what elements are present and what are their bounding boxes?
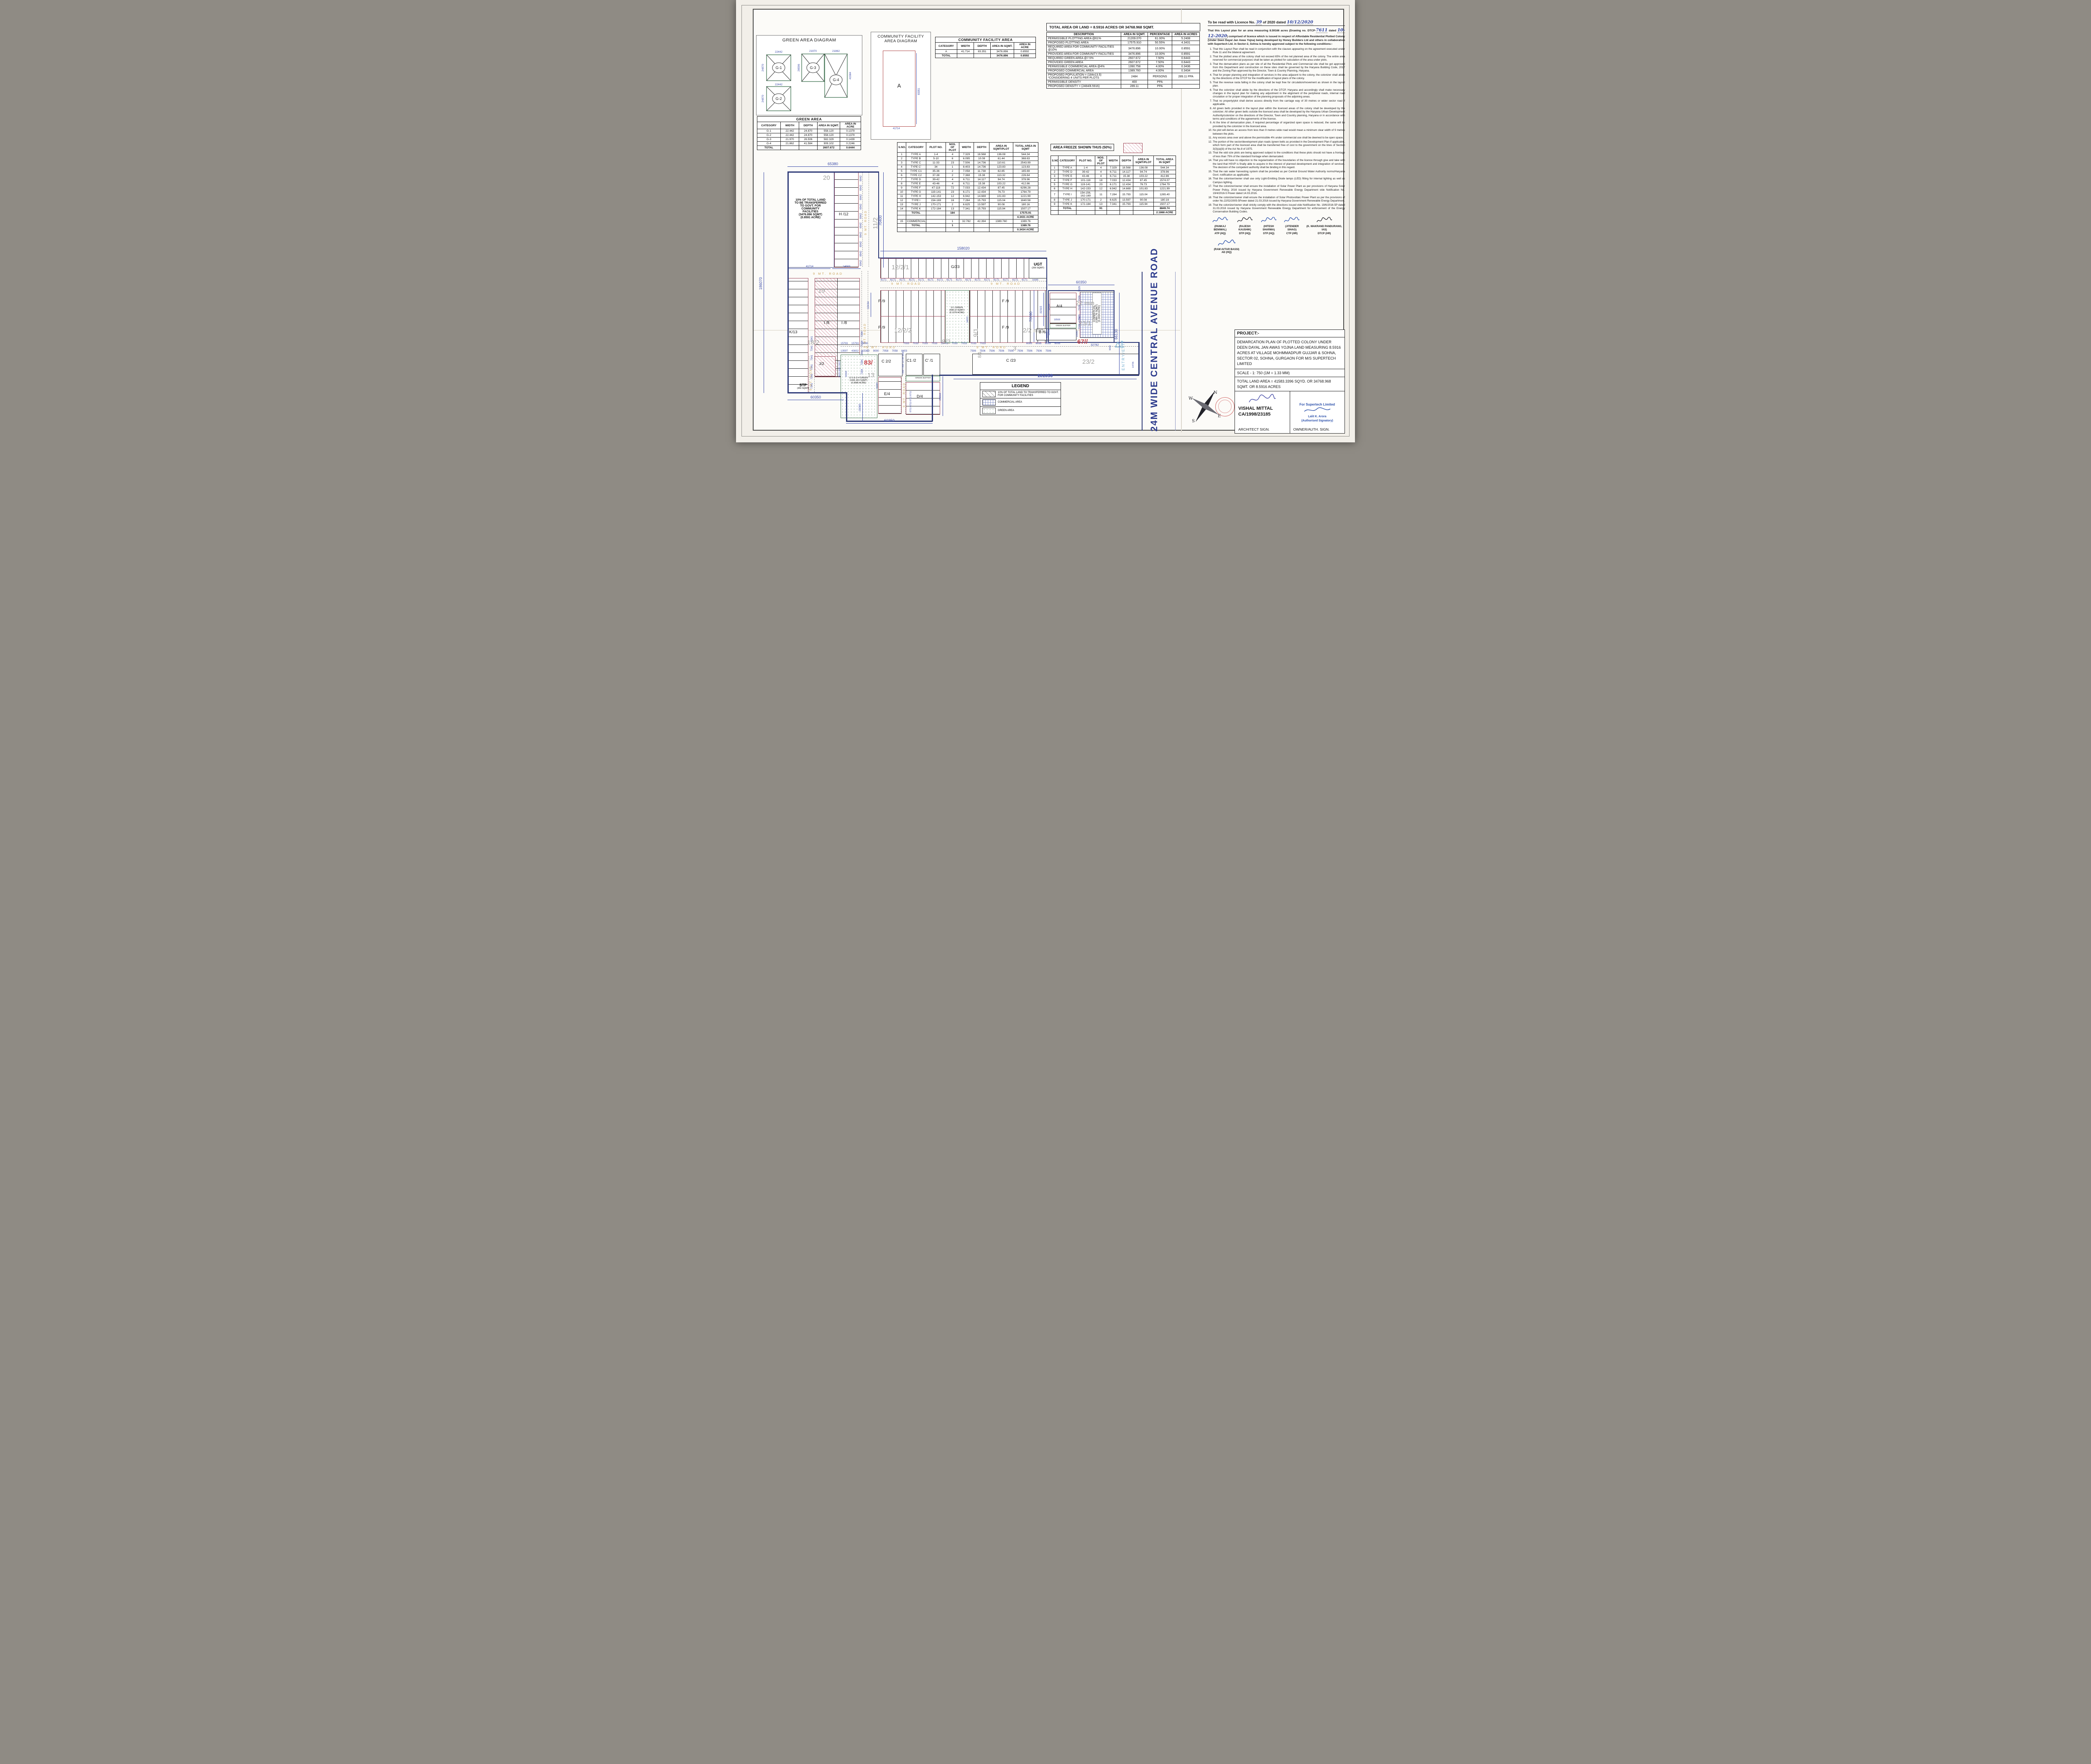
table-cell: TYPE D — [1058, 170, 1076, 174]
khasra-number: 3 — [1013, 345, 1016, 352]
khasra-number: 13 — [867, 372, 874, 379]
table-cell: 9 — [897, 186, 906, 190]
table-cell: 4 — [1095, 166, 1107, 170]
plot-label: C /23 — [1006, 359, 1016, 363]
green-table-title: GREEN AREA — [757, 117, 861, 122]
licence-condition: That this Layout Plan shall be read in c… — [1213, 48, 1345, 54]
table-cell — [974, 211, 989, 215]
table-cell: 142-153 — [926, 194, 946, 199]
table-cell: 170-171 — [1076, 198, 1095, 202]
legend-item-green: GREEN AREA — [980, 407, 1061, 415]
table-row: 2TYPE D39-4246.71114.11794.74378.96 — [1051, 170, 1176, 174]
col-width: WIDTH — [1107, 156, 1120, 166]
table-cell: TOTAL — [757, 146, 781, 150]
cf-table-title: COMMUNITY FACILITY AREA — [936, 37, 1036, 43]
table-cell: 9 — [1051, 202, 1058, 207]
table-cell: 12.434 — [974, 186, 989, 190]
area-freeze-note: AREA FREEZE SHOWN THUS (50%) — [1051, 144, 1114, 151]
col-category: CATEGORY — [1058, 156, 1076, 166]
table-row: G-321.97026.506582.3290.1439 — [757, 138, 861, 142]
plot-block-C12 — [906, 354, 923, 375]
table-row: PROPOSED POPULATION = (184x13.5) *CONSID… — [1047, 73, 1200, 80]
table-cell — [1172, 84, 1200, 89]
table-cell: TYPE K — [1058, 202, 1076, 207]
table-row: PERMISSIBLE DENSITY400PPA — [1047, 80, 1200, 84]
table-cell: 1507.17 — [1013, 207, 1038, 211]
road-label: 9 MT. ROAD — [864, 210, 867, 235]
table-cell: TYPE J — [1058, 198, 1076, 202]
table-cell — [897, 215, 906, 220]
road-label: 9 MT. ROAD — [903, 383, 906, 407]
architect-sign-cell: VISHAL MITTAL CA/1998/23185 ARCHITECT SI… — [1235, 391, 1290, 433]
col-area-per-plot: AREA IN SQMT/PLOT — [1133, 156, 1154, 166]
table-cell: 154-169 — [926, 199, 946, 203]
table-cell: 10.00% — [1148, 45, 1172, 52]
legend-item-commercial: COMMERCIAL AREA — [980, 398, 1061, 407]
licence-notes: To be read with Licence No. 39 of 2020 d… — [1208, 20, 1345, 254]
cf-diagram-title: COMMUNITY FACILITY AREA DIAGRAM — [871, 34, 930, 43]
table-cell: 61.44 — [989, 157, 1013, 161]
project-title-block: PROJECT:- DEMARCATION PLAN OF PLOTTED CO… — [1235, 329, 1345, 434]
dimension-label: 7284 7284 7284 7284 7284 — [861, 280, 864, 375]
dimension-label: 6942 6942 6942 6942 6942 6942 6942 6942 … — [860, 174, 863, 266]
table-row: G-421.86241.584909.1020.2246 — [757, 142, 861, 146]
dimension-label: 41584 — [877, 383, 879, 389]
drawing-sheet: GREEN AREA DIAGRAM G-1 G-3 G-4 G-2 — [736, 0, 1355, 442]
table-cell: 43-46 — [926, 182, 946, 186]
table-cell: 4 — [1095, 170, 1107, 174]
table-cell: 12.434 — [974, 190, 989, 194]
table-cell: 4.00% — [1148, 69, 1172, 73]
licence-condition: That you will have no objection to the r… — [1213, 159, 1345, 169]
plot-row-C23 — [972, 354, 1139, 375]
table-row: TOTAL3476.8960.8592 — [936, 54, 1036, 58]
table-cell: 7.033 — [1107, 179, 1120, 183]
table-cell: 37-38 — [926, 174, 946, 178]
table-cell: 8 — [897, 182, 906, 186]
table-cell: 2 — [946, 174, 959, 178]
table-cell: 6.711 — [959, 178, 974, 182]
licence-condition: That the colonizer/owner shall strictly … — [1213, 204, 1345, 214]
table-row: 5TYPE G119-141236.17112.43476.731764.79 — [1051, 183, 1176, 187]
table-cell: 5.2408 — [1172, 37, 1200, 41]
road-label: 9 MT. ROAD — [795, 272, 861, 276]
table-cell — [1107, 211, 1120, 215]
table-cell: TYPE E — [1058, 174, 1076, 179]
g2-depth-dim: 24870 — [762, 95, 764, 102]
table-cell: TYPE A — [1058, 166, 1076, 170]
licence-condition: That the revenue rasta falling in the co… — [1213, 81, 1345, 88]
table-cell: 1764.79 — [1013, 190, 1038, 194]
table-cell — [897, 228, 906, 232]
licence-condition: That the odd size plots are being approv… — [1213, 151, 1345, 158]
table-cell: 2 — [946, 169, 959, 174]
table-cell: 15.793 — [1120, 191, 1133, 198]
table-cell: 7.058 — [959, 169, 974, 174]
table-cell — [926, 228, 946, 232]
table-cell — [1051, 211, 1058, 215]
table-cell: 3 — [1051, 174, 1058, 179]
table-cell — [989, 215, 1013, 220]
table-cell: 15.38 — [974, 174, 989, 178]
dimension-label: 7341 7341 7341 7341 7341 7341 — [811, 280, 814, 389]
cf-plot-A: A — [883, 51, 915, 127]
area-summary-table: DESCRIPTION AREA IN SQMT. PERCENTAGE ARE… — [1046, 32, 1200, 89]
licence-condition: That the colonizer shall abide by the di… — [1213, 89, 1345, 99]
table-cell: 24.870 — [799, 129, 818, 133]
table-cell: 101.83 — [1133, 187, 1154, 191]
dimension-label: 7368 7368 11738 3000 — [902, 355, 905, 375]
signatory-role: CTP (HR) — [1280, 232, 1304, 235]
plot-row-F9 — [880, 316, 945, 343]
table-cell: 115.04 — [989, 199, 1013, 203]
dimension-label: 6625 6625 5917 — [839, 358, 841, 377]
table-cell: 22.442 — [781, 129, 799, 133]
table-cell: 119-141 — [926, 190, 946, 194]
ugt-area: (200 SQMT) — [1029, 267, 1047, 269]
table-row: 4TYPE F101-118187.03312.43487.451574.07 — [1051, 179, 1176, 183]
table-cell: 16 — [946, 199, 959, 203]
table-cell: 13.597 — [1120, 198, 1133, 202]
table-cell: 136.08 — [989, 153, 1013, 157]
table-cell: 1 — [946, 224, 959, 228]
table-cell: 103.22 — [989, 182, 1013, 186]
plot-label: E/4 — [884, 392, 890, 396]
cf-depth-dim: 83351 — [918, 88, 920, 95]
table-cell: TOTAL — [936, 54, 957, 58]
plot-row-F9-freeze — [969, 290, 1047, 317]
table-cell: TYPE C — [906, 161, 926, 165]
table-cell: TYPE F — [906, 186, 926, 190]
table-cell: 1-4 — [1076, 166, 1095, 170]
table-cell: 113.32 — [989, 174, 1013, 178]
table-row: A41.71483.3513476.8960.8592 — [936, 50, 1036, 54]
table-cell: 172-184 — [926, 207, 946, 211]
khasra-number: 12/2/2 — [894, 327, 912, 334]
table-cell: 6.711 — [1107, 170, 1120, 174]
table-cell: 136.08 — [1133, 166, 1154, 170]
table-cell — [1095, 211, 1107, 215]
table-cell: 0.8591 — [1172, 45, 1200, 52]
table-cell: 1389.760 — [989, 220, 1013, 224]
table-cell: 14.669 — [974, 194, 989, 199]
table-cell: 14.117 — [1120, 170, 1133, 174]
table-cell: 2 — [1095, 198, 1107, 202]
table-cell: 2543.99 — [1013, 161, 1038, 165]
table-cell: 11.738 — [974, 169, 989, 174]
col-total-area: TOTAL AREA IN SQMT — [1154, 156, 1176, 166]
table-cell: 170-171 — [926, 203, 946, 207]
table-row: 1TYPE A1-447.32918.568136.08544.34 — [1051, 166, 1176, 170]
table-cell — [974, 224, 989, 228]
table-cell: 13 — [897, 203, 906, 207]
green-area-G1-block: G-1 GREEN (558.12 SQMT) (0.1379 ACRE) — [945, 290, 969, 343]
table-cell: 6.171 — [1107, 183, 1120, 187]
legend-title: LEGEND — [980, 383, 1061, 390]
table-cell: TYPE G — [1058, 183, 1076, 187]
table-cell — [959, 211, 974, 215]
table-cell — [974, 228, 989, 232]
table-cell: 23 — [946, 190, 959, 194]
signatory-role: DTCP (HR) — [1304, 232, 1345, 235]
signatory-name: (JITENDER SIHAG) — [1280, 225, 1304, 232]
table-cell: 1 — [946, 220, 959, 224]
plot-strip-H12 — [834, 172, 859, 268]
table-cell — [946, 215, 959, 220]
table-cell: PROPOSED COMMERCIAL AREA — [1047, 69, 1121, 73]
table-cell — [926, 211, 946, 215]
table-cell: 0.2246 — [840, 142, 861, 146]
table-cell: REQUIRED AREA FOR COMMUNITY FACILITIES @… — [1047, 45, 1121, 52]
table-cell — [1120, 211, 1133, 215]
table-cell: 91 — [1095, 207, 1107, 211]
project-heading: PROJECT:- — [1235, 330, 1345, 337]
entry-exit-arrow — [1114, 340, 1123, 350]
table-cell: 1840.58 — [1013, 199, 1038, 203]
table-cell: 0.6443 — [1172, 56, 1200, 61]
col-nos: NOS. OF PLOT — [946, 143, 959, 153]
table-cell — [926, 224, 946, 228]
owner-signature — [1303, 407, 1332, 413]
khasra-number: 23/2 — [1082, 359, 1094, 365]
col-area-acre: AREA IN ACRE — [840, 122, 861, 129]
table-cell: 1390.758 — [1121, 65, 1148, 69]
table-cell: 0.1379 — [840, 129, 861, 133]
plot-divider — [837, 278, 838, 377]
table-cell: 1389.760 — [1121, 69, 1148, 73]
licence-condition: That the plotted area of the colony shal… — [1213, 55, 1345, 62]
table-cell: 115.04 — [1133, 191, 1154, 198]
licence-date-handwritten: 10/12/2020 — [1287, 20, 1313, 25]
table-row: 3TYPE E43-4646.71115.38103.22412.86 — [1051, 174, 1176, 179]
project-land-area: TOTAL LAND AREA = 41583.3396 SQYD. OR 34… — [1235, 377, 1345, 391]
table-cell: 13 — [946, 207, 959, 211]
green-area-diagram-panel: GREEN AREA DIAGRAM G-1 G-3 G-4 G-2 — [756, 35, 862, 115]
plot-label: C' /1 — [925, 359, 933, 363]
approval-stamp — [1215, 397, 1235, 416]
table-cell: 83.351 — [974, 50, 991, 54]
site-boundary — [787, 171, 879, 173]
licence-conditions: That this Layout Plan shall be read in c… — [1208, 48, 1345, 214]
licence-condition: The portion of the sector/development pl… — [1213, 140, 1345, 151]
road-label: 9 MT. ROAD — [969, 346, 1015, 349]
table-cell: 4 — [946, 182, 959, 186]
table-cell: TYPE F — [1058, 179, 1076, 183]
licence-signatory-2: (RAM AVTAR BASSI) AD (HQ) — [1208, 240, 1245, 254]
table-cell: TYPE J — [906, 203, 926, 207]
cf-dim-line — [916, 53, 917, 124]
table-cell: 0.3434 ACRE — [1013, 228, 1038, 232]
legend-swatch-dots — [982, 408, 996, 414]
table-cell: 101.83 — [989, 194, 1013, 199]
table-cell: 61.00% — [1148, 37, 1172, 41]
table-row: G-222.44224.870558.1200.1379 — [757, 133, 861, 138]
signatory-name: (PANKAJ BENIWAL) — [1208, 225, 1232, 232]
table-cell: 4 — [897, 165, 906, 169]
table-cell: 5 — [897, 169, 906, 174]
khasra-number-red: 67// — [1077, 339, 1088, 345]
table-cell: TOTAL — [906, 224, 926, 228]
table-cell — [974, 215, 989, 220]
table-cell: 24.870 — [799, 133, 818, 138]
table-cell: 15.793 — [974, 199, 989, 203]
khasra-number-red: 83/ — [864, 360, 873, 366]
table-cell — [989, 224, 1013, 228]
table-cell: TYPE I — [906, 199, 926, 203]
table-cell: 1 — [897, 153, 906, 157]
road-label: 9 MT. ROAD — [983, 282, 1029, 286]
table-cell: 2607.672 — [1121, 61, 1148, 65]
table-cell — [957, 54, 974, 58]
table-cell: 7.368 — [959, 174, 974, 178]
dimension-label: 16085 — [1032, 279, 1038, 282]
table-row: PROVIDED GREEN AREA2607.6727.50%0.6443 — [1047, 61, 1200, 65]
table-cell: 82.85 — [989, 169, 1013, 174]
col-depth: DEPTH — [974, 143, 989, 153]
table-cell: PERSONS — [1148, 73, 1172, 80]
table-cell: 412.86 — [1154, 174, 1176, 179]
central-avenue-road-label: 24M WIDE CENTRAL AVENUE ROAD — [1149, 248, 1159, 431]
col-depth: DEPTH — [799, 122, 818, 129]
table-cell: 544.34 — [1154, 166, 1176, 170]
table-cell: 7.329 — [959, 153, 974, 157]
table-cell: 2607.672 — [818, 146, 840, 150]
stp-block: STP (450 SQMT) — [797, 383, 809, 390]
site-boundary — [1048, 290, 1114, 291]
table-cell — [926, 220, 946, 224]
table-cell: 18.568 — [974, 153, 989, 157]
plot-label: C 2/2 — [882, 360, 891, 364]
table-cell: 42.394 — [974, 220, 989, 224]
table-cell: 18.568 — [1120, 166, 1133, 170]
table-cell: 4 — [1095, 174, 1107, 179]
legend-item-community: 10% OF TOTAL LAND TO TRANSFERRED TO GOVT… — [980, 390, 1061, 398]
table-row: 9TYPE F47-118727.03312.43487.456296.28 — [897, 186, 1038, 190]
table-cell: TYPE C1 — [906, 169, 926, 174]
licence-no-handwritten: 39 — [1256, 20, 1262, 25]
col-plot-no: PLOT NO. — [926, 143, 946, 153]
site-boundary — [787, 171, 789, 392]
table-cell: 8849.74 — [1154, 207, 1176, 211]
table-cell: 558.120 — [818, 133, 840, 138]
table-cell: 11 — [897, 194, 906, 199]
table-cell: 1 — [1051, 166, 1058, 170]
table-cell: 1221.99 — [1154, 187, 1176, 191]
table-cell: 6.942 — [1107, 187, 1120, 191]
table-cell: 115.94 — [1133, 202, 1154, 207]
licence-condition: Any excess area over and above the permi… — [1213, 136, 1345, 140]
table-cell: 23 — [946, 161, 959, 165]
table-row: 7TYPE D39-4246.71114.11794.74378.96 — [897, 178, 1038, 182]
table-cell: 1265.40 — [1154, 191, 1176, 198]
table-cell: 17575.91 — [1013, 211, 1038, 215]
table-cell — [959, 224, 974, 228]
table-cell: PPA — [1148, 80, 1172, 84]
plot-block-J2 — [815, 356, 836, 376]
table-cell: 14.736 — [974, 161, 989, 165]
khasra-number: 8/1 — [978, 352, 983, 358]
col-description: DESCRIPTION — [1047, 33, 1121, 37]
table-cell: 11 — [1095, 191, 1107, 198]
table-cell — [897, 224, 906, 228]
table-cell: 10 — [897, 190, 906, 194]
plot-label: C1 /2 — [907, 359, 916, 363]
avenue-road-edge-2 — [1175, 272, 1176, 431]
table-cell: 909.102 — [818, 142, 840, 146]
table-row: PROPOSED DENSITY = (2484/8.5916)289.11PP… — [1047, 84, 1200, 89]
green-plot-g4: G-4 — [833, 78, 839, 82]
table-cell — [1051, 207, 1058, 211]
table-cell: G-2 — [757, 133, 781, 138]
table-cell: 5-10 — [926, 157, 946, 161]
table-cell: 7.284 — [959, 199, 974, 203]
table-cell: 3476.896 — [1121, 52, 1148, 56]
table-cell: 23 — [1095, 183, 1107, 187]
table-cell: 7 — [897, 178, 906, 182]
table-cell: 39-42 — [926, 178, 946, 182]
table-cell: 6.095 — [959, 157, 974, 161]
table-cell: 12.434 — [1120, 179, 1133, 183]
site-boundary — [1138, 342, 1140, 375]
compass-n: N — [1214, 391, 1217, 395]
dimension-label: 13597 43832 15380 9000 7058 7058 8403 — [841, 350, 907, 353]
table-cell: PROVIDED AREA FOR COMMUNITY FACILITIES — [1047, 52, 1121, 56]
table-cell: 0.8592 — [1014, 54, 1036, 58]
licence-condition: That no property/plot shall derive acces… — [1213, 100, 1345, 106]
table-cell: 368.63 — [1013, 157, 1038, 161]
table-cell: 6 — [1051, 187, 1058, 191]
table-row: G-122.44224.870558.1200.1379 — [757, 129, 861, 133]
table-row: 15COMMERCIAL132.78242.3941389.7601389.76 — [897, 220, 1038, 224]
plot-label: F /9 — [1002, 299, 1009, 304]
khasra-number: 9/1 — [973, 328, 979, 337]
site-boundary — [878, 171, 879, 258]
signature-scribble — [1260, 217, 1277, 224]
commercial-text: COMMERCIAL (1389.76 SQMT) (0.3434 ACRE) — [1092, 293, 1102, 334]
table-cell: 7.506 — [959, 161, 974, 165]
plot-label: F /9 — [1002, 326, 1009, 330]
dimension-label: 18000 — [1046, 332, 1049, 338]
table-cell: 154-156, 162-169 — [1076, 191, 1095, 198]
licence-condition: That the coloniser/owner shall use only … — [1213, 177, 1345, 184]
legend-box: LEGEND 10% OF TOTAL LAND TO TRANSFERRED … — [980, 382, 1061, 415]
green-plot-g3: G-3 — [810, 66, 816, 70]
table-cell: 4 — [1051, 179, 1058, 183]
total-area-header: TOTAL AREA OR LAND = 8.5916 ACRES OR 347… — [1046, 23, 1200, 31]
dimension-label: 14736 — [1132, 362, 1135, 368]
table-cell: 1 — [946, 165, 959, 169]
signature-scribble — [1212, 217, 1229, 224]
green-plot-g2: G-2 — [775, 97, 782, 101]
table-cell — [989, 211, 1013, 215]
table-row: PERMISSIBLE COMMERCIAL AREA @4%1390.7584… — [1047, 65, 1200, 69]
col-depth: DEPTH — [1120, 156, 1133, 166]
table-cell: 14.736 — [974, 165, 989, 169]
table-cell: TYPE A — [906, 153, 926, 157]
dimension-label: 24870 — [967, 317, 969, 323]
table-cell: 7.329 — [1107, 166, 1120, 170]
plot-label: F /9 — [878, 326, 885, 330]
plot-label: D/4 — [917, 395, 923, 399]
col-total-area: TOTAL AREA IN SQMT — [1013, 143, 1038, 153]
table-cell: 41.714 — [957, 50, 974, 54]
table-cell: TYPE C2 — [906, 174, 926, 178]
green-area-diagram: G-1 G-3 G-4 G-2 22442 21970 21862 22442 … — [757, 44, 862, 114]
g3-width-dim: 21970 — [809, 50, 817, 53]
table-cell: 378.96 — [1013, 178, 1038, 182]
table-row: 9TYPE K172-184137.34115.793115.941507.17 — [1051, 202, 1176, 207]
table-cell — [1120, 207, 1133, 211]
